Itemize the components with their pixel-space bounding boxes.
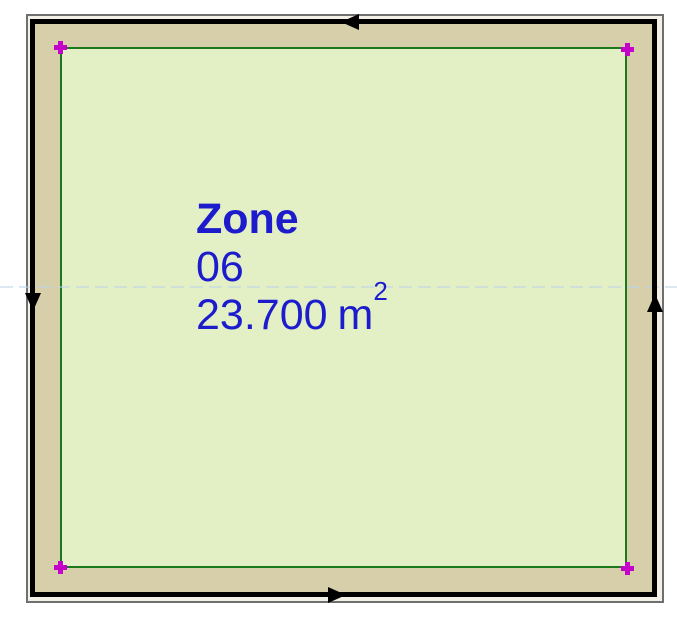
zone-stamp-number: 06 [196,243,388,291]
zone-stamp[interactable]: Zone 06 23.700m2 [196,195,388,339]
zone-stamp-name: Zone [196,195,388,243]
drawing-canvas: Zone 06 23.700m2 [0,0,677,617]
zone-area-value: 23.700 [196,291,328,339]
wall-direction-arrow-right[interactable] [647,294,663,312]
corner-node-icon[interactable] [54,561,67,574]
corner-node-icon[interactable] [54,41,67,54]
corner-node-icon[interactable] [621,43,634,56]
corner-node-icon[interactable] [621,562,634,575]
zone-area-unit-exponent: 2 [373,276,387,306]
wall-direction-arrow-left[interactable] [25,293,41,311]
wall-direction-arrow-top[interactable] [341,14,359,30]
wall-direction-arrow-bottom[interactable] [328,587,346,603]
zone-area-unit: m [338,291,374,339]
zone-stamp-area: 23.700m2 [196,291,388,339]
